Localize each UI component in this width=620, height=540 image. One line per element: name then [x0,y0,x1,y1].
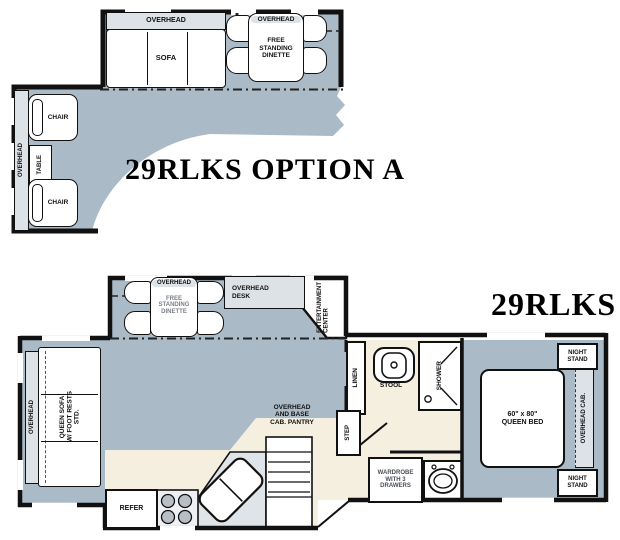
pantry-label: OVERHEAD AND BASE CAB. PANTRY [248,404,336,426]
sofa-cushion-divider [187,32,188,85]
chair: CHAIR [28,94,78,141]
wardrobe-label: WARDROBE WITH 3 DRAWERS [378,470,414,490]
overhead-label: OVERHEAD [29,400,36,434]
shower-label: SHOWER [436,361,443,390]
entertainment-center-label: ENTERTAINMENT CENTER [317,282,330,333]
plan-a-title: 29RLKS OPTION A [125,153,405,187]
overhead-cab-label: OVERHEAD CAB. [581,393,588,443]
overhead-label: OVERHEAD [251,16,301,23]
overhead-desk-label: OVERHEAD DESK [232,285,269,300]
overhead-cabinet-sofa-wall: OVERHEAD [25,351,39,484]
sofa-footrest-line [45,351,46,483]
night-stand: NIGHT STAND [557,469,598,497]
dinette-label: FREE STANDING DINETTE [259,37,292,59]
free-standing-dinette: OVERHEAD FREE STANDING DINETTE [150,277,198,337]
table-label: TABLE [37,155,44,175]
night-stand-label: NIGHT STAND [567,350,587,363]
free-standing-dinette: OVERHEAD FREE STANDING DINETTE [248,13,304,82]
dinette-chair [124,311,151,335]
sofa: SOFA [106,29,226,88]
sofa-label: SOFA [156,54,176,62]
dinette-chair [197,281,224,304]
queen-sofa: QUEEN SOFA W/ FOOT RESTS STD. [38,347,101,487]
overhead-cabinet-sofa: OVERHEAD [106,12,226,30]
refrigerator: REFER [105,489,158,529]
overhead-label: OVERHEAD [18,143,25,177]
floorplan-page: OVERHEAD SOFA OVERHEAD FREE STANDING DIN… [0,0,620,540]
overhead-label: OVERHEAD [152,280,195,287]
refer-label: REFER [120,505,144,513]
queen-bed-label: 60" x 80" QUEEN BED [502,411,544,427]
wardrobe: WARDROBE WITH 3 DRAWERS [368,457,423,503]
pantry-steps [266,437,312,528]
dinette-chair [303,47,327,74]
stove-burners [156,490,198,528]
sofa-cushion-divider [147,32,148,85]
overhead-label: OVERHEAD [146,17,186,25]
linen-cabinet: LINEN [346,341,366,415]
overhead-cabinet-left: OVERHEAD [14,90,29,231]
chair-label: CHAIR [48,114,69,121]
plan-b-title: 29RLKS [491,286,616,323]
queen-sofa-label: QUEEN SOFA W/ FOOT RESTS STD. [59,391,81,442]
shower: SHOWER [418,341,462,411]
step: STEP [336,410,361,456]
dinette-chair [197,311,224,335]
stool-label: STOOL [364,382,418,389]
toilet-shape [374,348,414,382]
night-stand: NIGHT STAND [557,343,598,370]
linen-label: LINEN [352,368,359,388]
overhead-desk: OVERHEAD DESK [224,276,305,309]
chair: CHAIR [28,179,78,227]
dinette-chair [226,47,250,74]
overhead-cabinet-bedroom: OVERHEAD CAB. [575,369,594,468]
step-label: STEP [345,425,352,441]
queen-bed: 60" x 80" QUEEN BED [480,369,565,468]
dinette-chair [124,281,151,304]
entertainment-center: ENTERTAINMENT CENTER [302,277,346,338]
night-stand-label: NIGHT STAND [567,476,587,489]
dinette-label: FREE STANDING DINETTE [159,296,190,316]
chair-label: CHAIR [48,199,69,206]
dinette-chair [303,15,327,42]
lavatory-shape [424,461,462,499]
dinette-chair [226,15,250,42]
